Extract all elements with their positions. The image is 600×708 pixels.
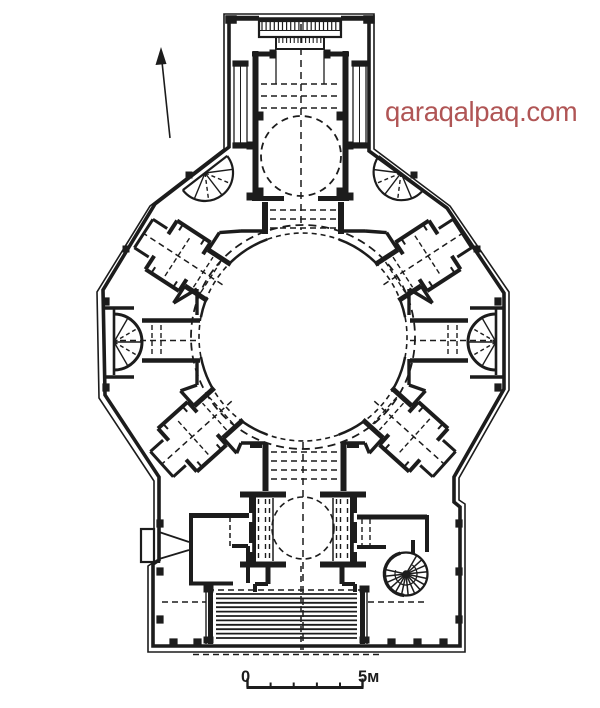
svg-text:5м: 5м <box>358 668 379 686</box>
svg-text:qaraqalpaq.com: qaraqalpaq.com <box>385 96 577 127</box>
svg-text:0: 0 <box>241 668 250 686</box>
